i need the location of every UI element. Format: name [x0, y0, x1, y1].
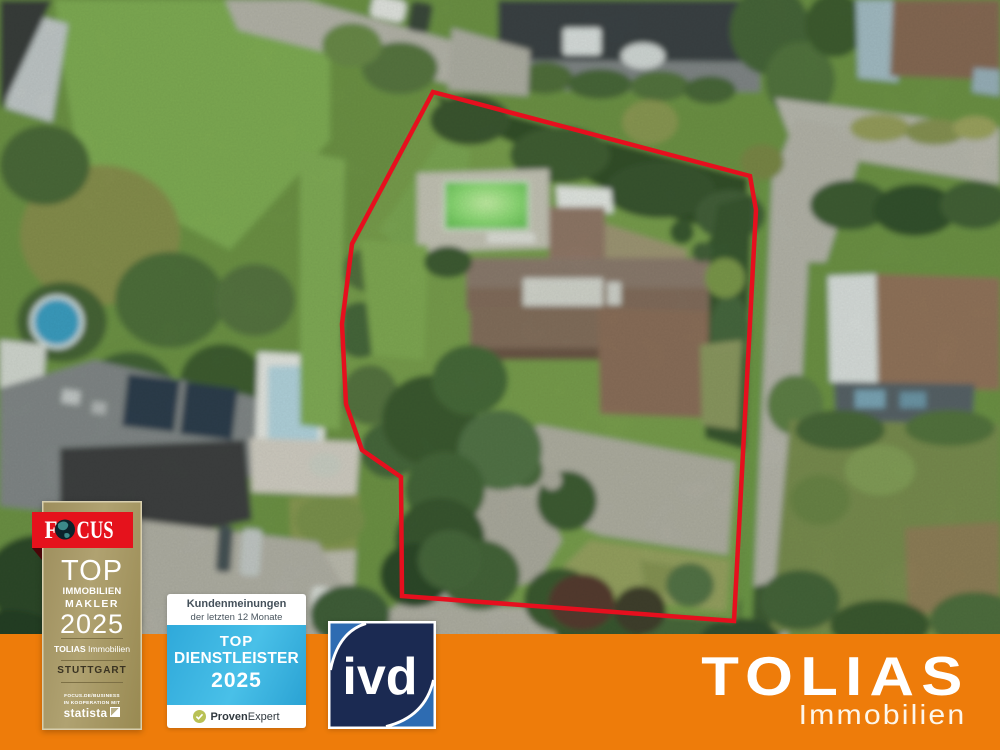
svg-text:ivd: ivd	[342, 648, 417, 706]
svg-text:CUS: CUS	[77, 517, 114, 544]
